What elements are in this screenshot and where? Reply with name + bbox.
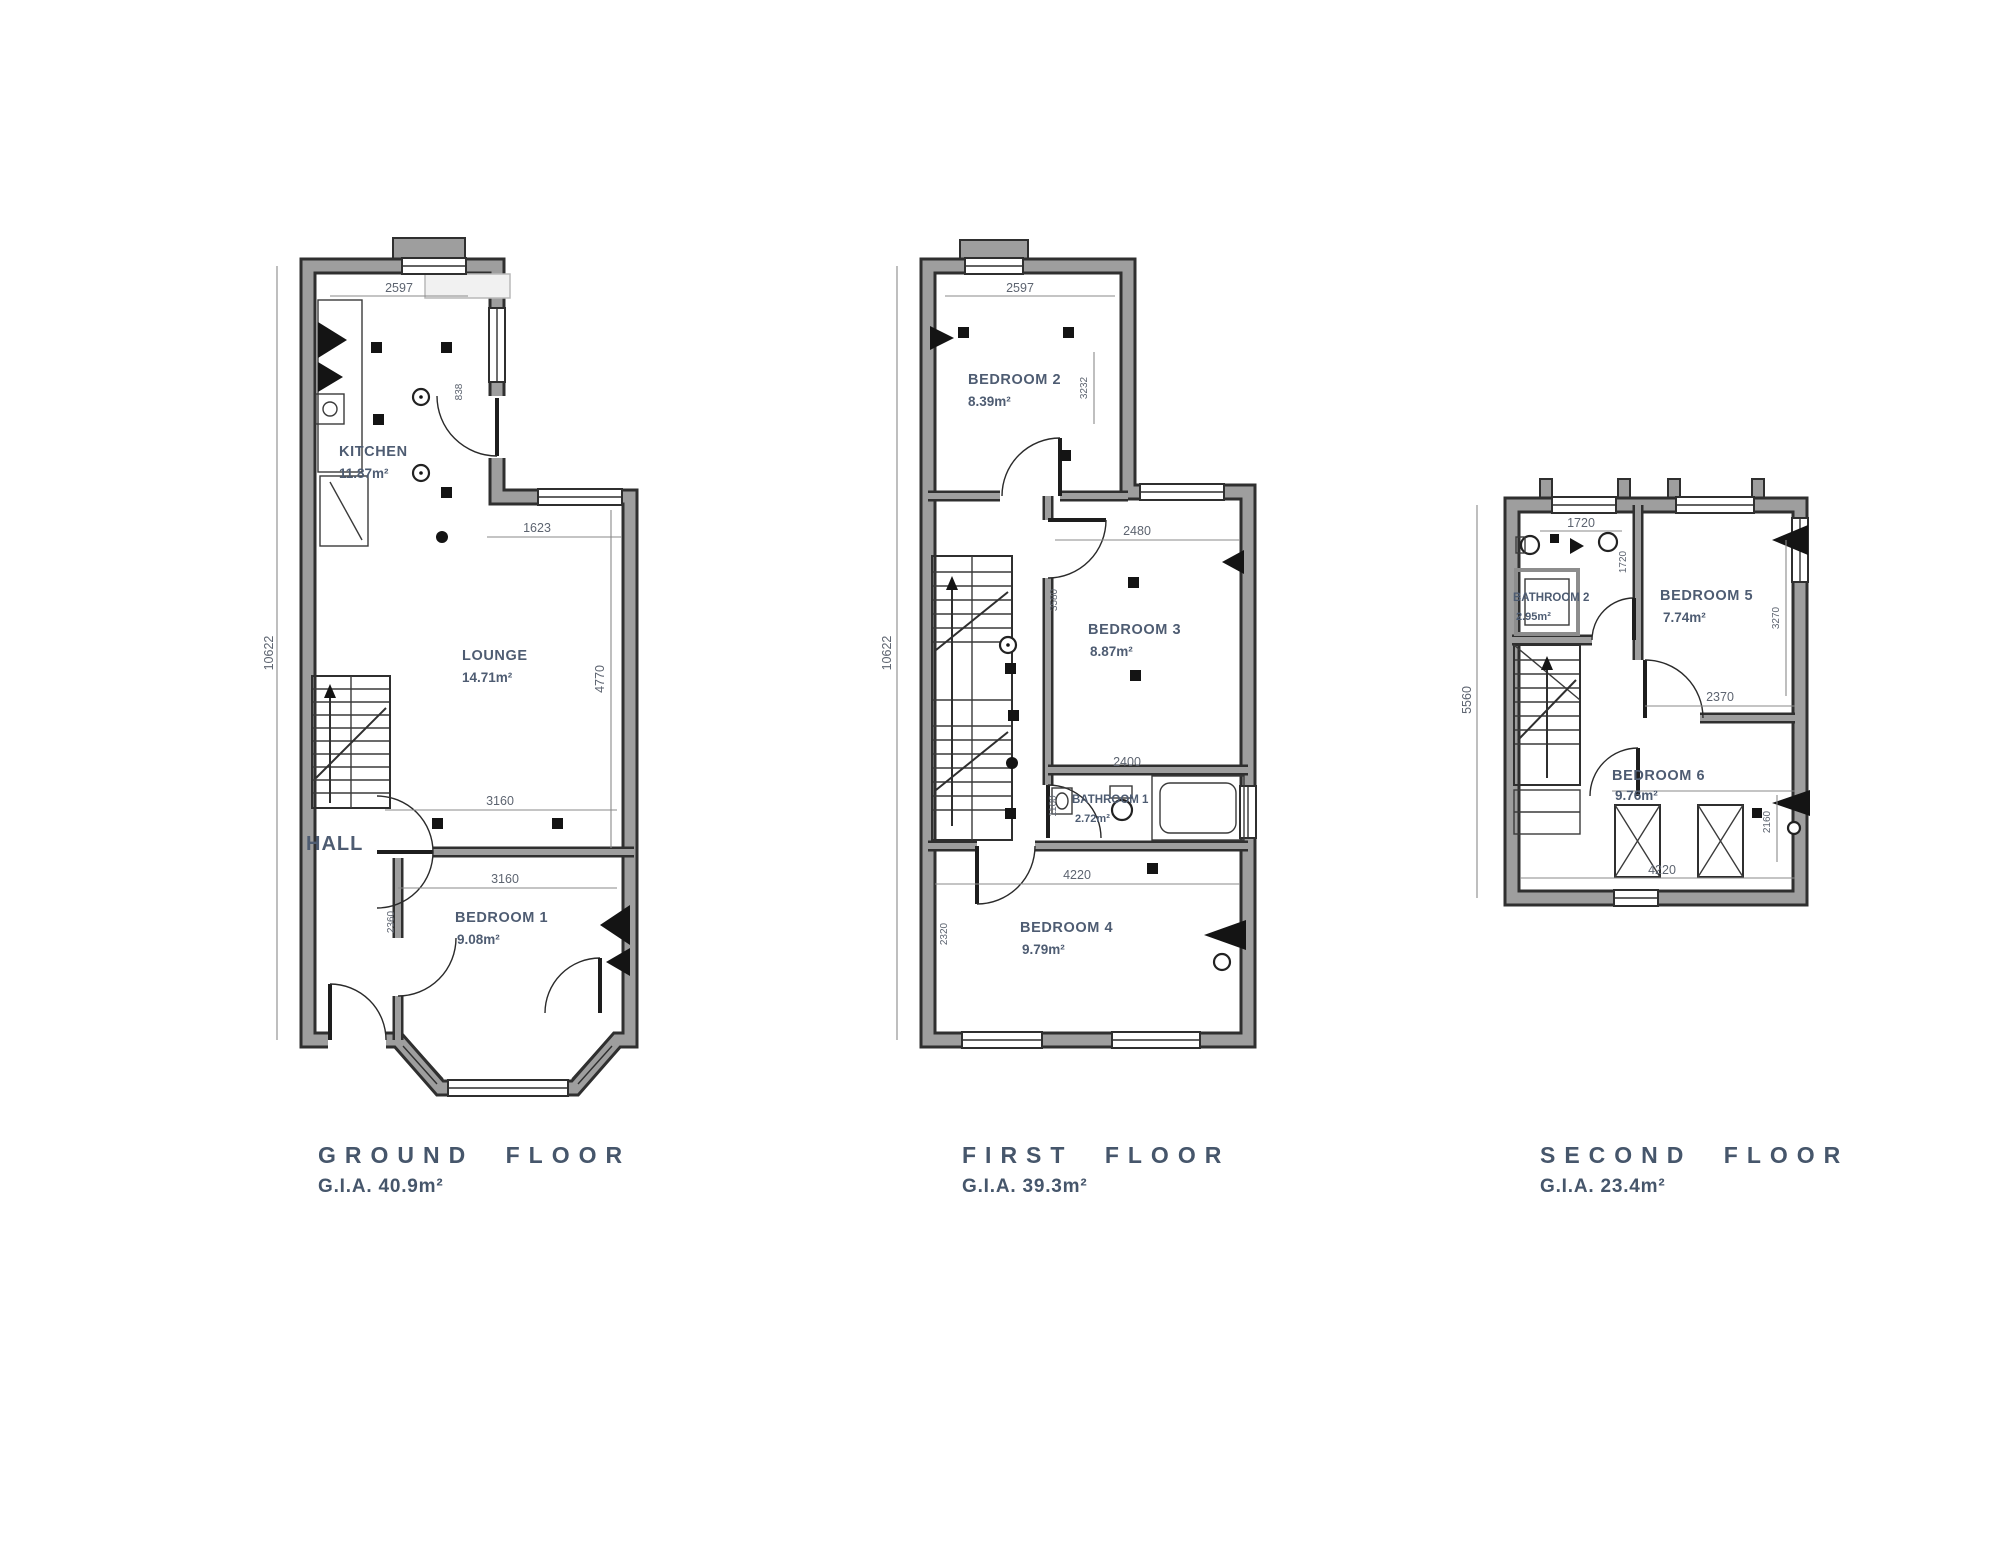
dim-first-width: 2597 (1006, 281, 1034, 295)
downlight-icon (1060, 450, 1071, 461)
ground-floor-caption: GROUND FLOOR G.I.A. 40.9m² (318, 1142, 631, 1198)
room-area-bedroom5: 7.74m² (1663, 610, 1706, 625)
downlight-icon (1063, 327, 1074, 338)
pendant-light-icon (436, 531, 448, 543)
dim-bedroom3-top: 2480 (1123, 524, 1151, 538)
downlight-icon (552, 818, 563, 829)
downlight-icon (1130, 670, 1141, 681)
dim-second-height: 5560 (1460, 686, 1474, 714)
dim-kitchen-door: 838 (454, 383, 465, 400)
dim-bathroom-top: 2400 (1113, 755, 1141, 769)
dim-bedroom3-height: 3580 (1049, 588, 1060, 611)
downlight-icon (441, 342, 452, 353)
downlight-icon (1147, 863, 1158, 874)
downlight-icon (1752, 808, 1762, 818)
dim-bedroom4-height: 2320 (939, 922, 950, 945)
room-label-hall: HALL (306, 833, 363, 855)
downlight-icon (1005, 808, 1016, 819)
room-label-bathroom1: BATHROOM 1 (1072, 794, 1149, 806)
dim-bedroom1-width: 3160 (491, 872, 519, 886)
second-floor-title: SECOND FLOOR (1540, 1142, 1849, 1169)
downlight-icon (371, 342, 382, 353)
room-area-bedroom4: 9.79m² (1022, 942, 1065, 957)
first-floor-gia: G.I.A. 39.3m² (962, 1176, 1230, 1198)
room-area-bathroom1: 2.72m² (1075, 813, 1110, 825)
room-label-bedroom4: BEDROOM 4 (1020, 920, 1113, 936)
room-label-bedroom5: BEDROOM 5 (1660, 588, 1753, 604)
room-label-bedroom2: BEDROOM 2 (968, 372, 1061, 388)
dim-lounge-height: 4770 (593, 665, 607, 693)
first-floor-title: FIRST FLOOR (962, 1142, 1230, 1169)
downlight-icon (958, 327, 969, 338)
downlight-icon (1128, 577, 1139, 588)
room-label-kitchen: KITCHEN (339, 444, 408, 460)
dim-lounge-top: 1623 (523, 521, 551, 535)
second-floor-caption: SECOND FLOOR G.I.A. 23.4m² (1540, 1142, 1849, 1198)
dim-bedroom5-height: 3270 (1771, 606, 1782, 629)
room-area-bedroom6: 9.76m² (1615, 788, 1658, 803)
ground-floor-title: GROUND FLOOR (318, 1142, 631, 1169)
room-area-bedroom1: 9.08m² (457, 932, 500, 947)
floorplan-sheet: 2597 10622 1623 4770 3160 3160 2360 838 … (0, 0, 2000, 1560)
room-area-bathroom2: 2.95m² (1516, 611, 1551, 623)
dim-bedroom1-height: 2360 (386, 910, 397, 933)
dim-hall-width: 3160 (486, 794, 514, 808)
room-label-bathroom2: BATHROOM 2 (1513, 592, 1589, 604)
room-area-bedroom3: 8.87m² (1090, 644, 1133, 659)
downlight-icon (1005, 663, 1016, 674)
dim-ground-height: 10622 (262, 636, 276, 671)
second-floor-plan: 1720 1720 5560 3270 2370 2160 4220 BATHR… (1400, 380, 1920, 1020)
downlight-icon (1008, 710, 1019, 721)
room-label-bedroom1: BEDROOM 1 (455, 910, 548, 926)
downlight-icon (441, 487, 452, 498)
dim-bathroom2-top: 1720 (1567, 516, 1595, 530)
room-label-bedroom6: BEDROOM 6 (1612, 768, 1705, 784)
ground-floor-plan: 2597 10622 1623 4770 3160 3160 2360 838 … (230, 190, 700, 1110)
dim-bedroom5-bottom: 2370 (1706, 690, 1734, 704)
pendant-light-icon (1006, 757, 1018, 769)
second-floor-gia: G.I.A. 23.4m² (1540, 1176, 1849, 1198)
dim-second-bottom: 4220 (1648, 863, 1676, 877)
dim-bathroom2-height: 1720 (1618, 550, 1629, 573)
dim-bedroom4-top: 4220 (1063, 868, 1091, 882)
toilet (1521, 536, 1539, 554)
dim-ground-width: 2597 (385, 281, 413, 295)
dim-bedroom6-height: 2160 (1762, 810, 1773, 833)
room-label-bedroom3: BEDROOM 3 (1088, 622, 1181, 638)
first-floor-plan: 2597 10622 3232 2480 3580 2400 1100 4220… (860, 190, 1330, 1110)
dim-bathroom-height: 1100 (1048, 795, 1059, 817)
downlight-icon (432, 818, 443, 829)
ground-floor-gia: G.I.A. 40.9m² (318, 1176, 631, 1198)
basin (1599, 533, 1617, 551)
first-floor-caption: FIRST FLOOR G.I.A. 39.3m² (962, 1142, 1230, 1198)
downlight-icon (373, 414, 384, 425)
dim-first-height: 10622 (880, 636, 894, 671)
dim-bedroom2-height: 3232 (1079, 376, 1090, 399)
room-area-bedroom2: 8.39m² (968, 394, 1011, 409)
room-area-kitchen: 11.87m² (339, 466, 389, 481)
room-label-lounge: LOUNGE (462, 648, 528, 664)
room-area-lounge: 14.71m² (462, 670, 513, 685)
